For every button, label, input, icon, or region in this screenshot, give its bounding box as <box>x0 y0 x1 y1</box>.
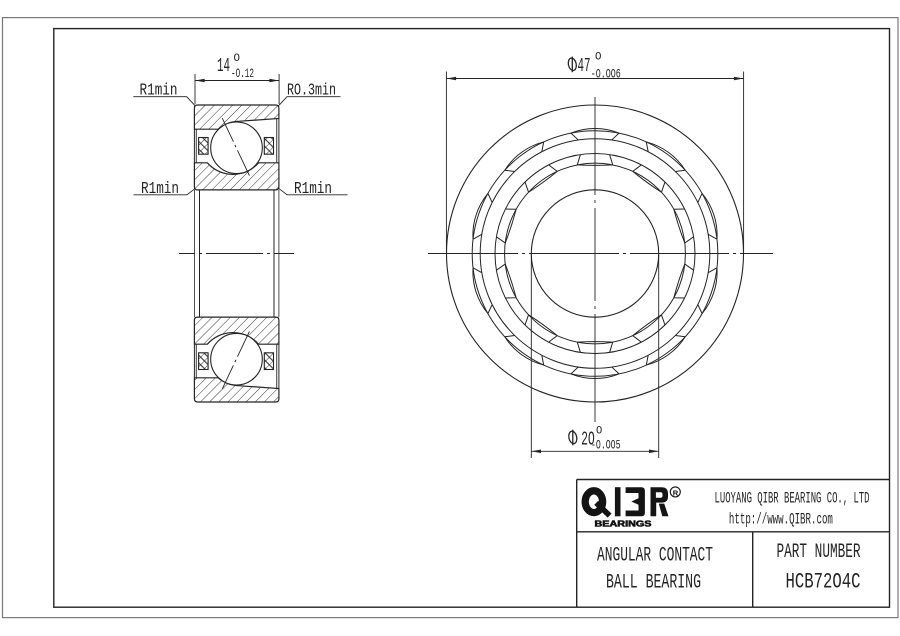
svg-text:HCB72O4C: HCB72O4C <box>786 570 861 595</box>
svg-text:47: 47 <box>578 55 591 77</box>
svg-text:LUOYANG QIBR BEARING CO., LTD: LUOYANG QIBR BEARING CO., LTD <box>715 490 870 508</box>
svg-text:-O.OO6: -O.OO6 <box>591 66 621 81</box>
svg-text:O: O <box>595 52 602 64</box>
svg-text:O: O <box>234 53 241 65</box>
svg-text:R1min: R1min <box>140 81 178 100</box>
svg-text:-O.12: -O.12 <box>231 66 254 81</box>
svg-text:BALL BEARING: BALL BEARING <box>606 572 701 595</box>
svg-text:R: R <box>673 488 679 497</box>
svg-text:14: 14 <box>217 55 230 77</box>
svg-text:ANGULAR CONTACT: ANGULAR CONTACT <box>597 545 713 568</box>
svg-text:R1min: R1min <box>141 179 179 198</box>
svg-text:BEARINGS: BEARINGS <box>595 519 652 528</box>
svg-text:RO.3min: RO.3min <box>287 81 336 100</box>
svg-text:http://www.QIBR.com: http://www.QIBR.com <box>729 511 833 529</box>
svg-text:PART NUMBER: PART NUMBER <box>777 541 861 564</box>
svg-text:O: O <box>596 425 603 437</box>
svg-text:-O.OO5: -O.OO5 <box>591 437 621 452</box>
svg-text:R1min: R1min <box>294 179 332 198</box>
